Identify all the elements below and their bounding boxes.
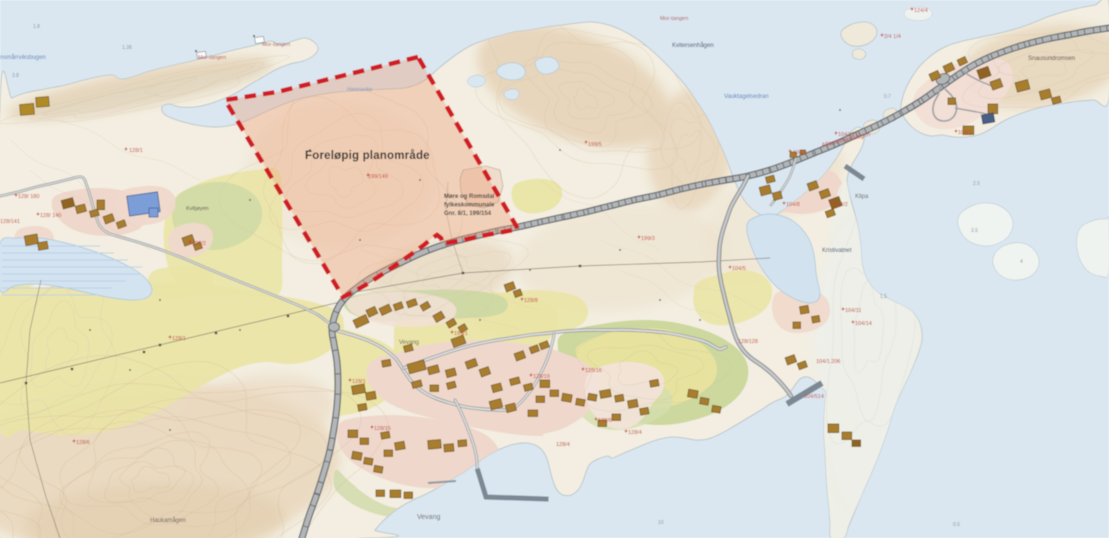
- svg-text:3.5: 3.5: [971, 228, 978, 234]
- svg-text:128/16: 128/16: [585, 368, 602, 374]
- svg-text:104/4: 104/4: [793, 150, 807, 156]
- svg-text:128/8: 128/8: [524, 298, 538, 304]
- svg-text:Hamnavika: Hamnavika: [347, 87, 372, 93]
- svg-text:128/141: 128/141: [0, 219, 20, 225]
- svg-text:128/1: 128/1: [129, 148, 143, 154]
- svg-text:128/6: 128/6: [76, 440, 90, 446]
- svg-text:128/2: 128/2: [192, 241, 206, 247]
- svg-text:128/ 180: 128/ 180: [18, 194, 39, 200]
- svg-text:Kvitjøyen: Kvitjøyen: [186, 206, 209, 212]
- svg-text:4: 4: [1020, 259, 1023, 265]
- svg-text:2/4 1/4: 2/4 1/4: [884, 34, 901, 40]
- svg-text:10: 10: [658, 520, 664, 526]
- svg-text:Vevang: Vevang: [417, 514, 440, 521]
- svg-text:104/8: 104/8: [786, 202, 800, 208]
- svg-text:1.38: 1.38: [122, 45, 132, 51]
- svg-text:128/4: 128/4: [628, 430, 642, 436]
- svg-text:Mor-tangen: Mor-tangen: [262, 42, 290, 48]
- svg-text:199/5: 199/5: [588, 142, 602, 148]
- svg-text:Snausundromsen: Snausundromsen: [1028, 56, 1075, 62]
- svg-text:Klipa: Klipa: [855, 194, 869, 200]
- svg-text:128/15: 128/15: [374, 426, 391, 432]
- svg-text:199/149: 199/149: [368, 174, 388, 180]
- svg-text:104/2: 104/2: [834, 202, 848, 208]
- svg-text:128/19: 128/19: [533, 374, 550, 380]
- svg-text:104/1.206: 104/1.206: [816, 359, 840, 365]
- svg-text:104/5: 104/5: [732, 266, 746, 272]
- svg-text:1.5: 1.5: [880, 294, 887, 300]
- svg-text:0.7: 0.7: [884, 94, 891, 100]
- svg-text:128/1: 128/1: [352, 379, 366, 385]
- svg-text:Mor-tangen: Mor-tangen: [660, 16, 688, 22]
- svg-text:Møre og Romsdal: Møre og Romsdal: [444, 194, 495, 200]
- svg-text:199/3: 199/3: [641, 236, 655, 242]
- svg-text:0.5: 0.5: [953, 522, 960, 528]
- svg-text:Haukamågen: Haukamågen: [150, 517, 186, 524]
- svg-text:Gnr. 8/1, 199/154: Gnr. 8/1, 199/154: [444, 211, 492, 217]
- svg-text:Kvitersenhågen: Kvitersenhågen: [672, 42, 714, 49]
- svg-text:nsmårrviksbugen: nsmårrviksbugen: [0, 54, 46, 61]
- svg-text:Vevang: Vevang: [399, 340, 419, 346]
- svg-text:1.8: 1.8: [33, 24, 40, 30]
- svg-text:2.5: 2.5: [973, 181, 980, 187]
- svg-text:Kristivatnet: Kristivatnet: [822, 248, 852, 254]
- svg-text:Vauktagelsedran: Vauktagelsedran: [724, 94, 769, 100]
- svg-text:Mor-tangen: Mor-tangen: [198, 55, 226, 61]
- svg-text:3.8: 3.8: [12, 73, 19, 79]
- svg-text:128/6: 128/6: [598, 418, 612, 424]
- svg-text:fylkeskommunale: fylkeskommunale: [444, 203, 495, 209]
- svg-text:199/1: 199/1: [454, 331, 468, 337]
- svg-text:128/4: 128/4: [556, 442, 570, 448]
- svg-text:104/1: 104/1: [958, 130, 972, 136]
- svg-text:Foreløpig planområde: Foreløpig planområde: [305, 150, 430, 162]
- svg-text:124/4: 124/4: [914, 8, 928, 14]
- svg-text:128/128: 128/128: [738, 339, 758, 345]
- svg-text:104/514: 104/514: [804, 394, 824, 400]
- svg-text:128/1: 128/1: [172, 336, 186, 342]
- svg-text:104/11: 104/11: [845, 308, 861, 314]
- svg-text:104/14: 104/14: [855, 321, 872, 327]
- svg-text:128/ 140: 128/ 140: [40, 213, 61, 219]
